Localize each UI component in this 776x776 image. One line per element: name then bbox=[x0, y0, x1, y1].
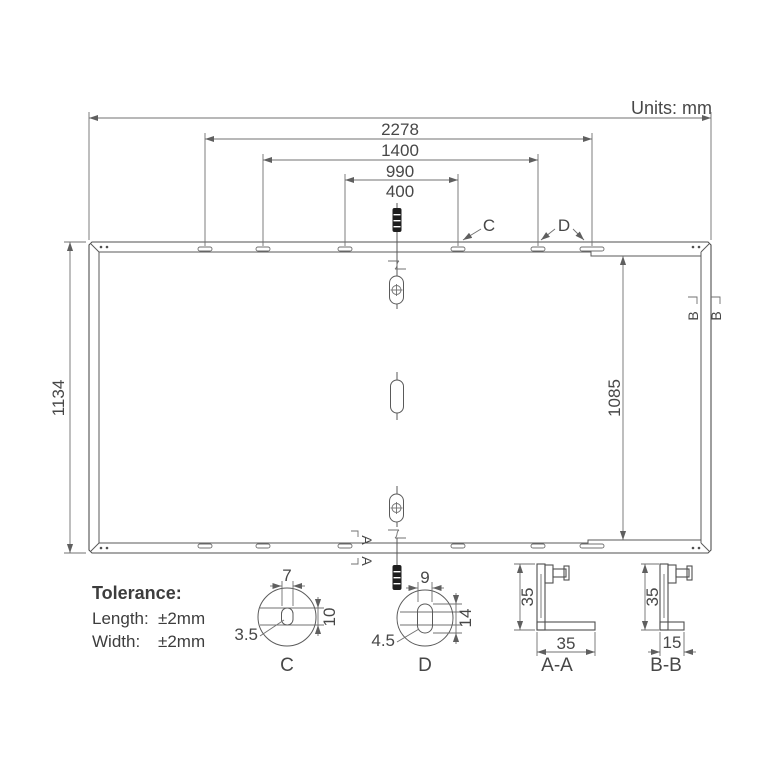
detail-d-circle bbox=[397, 590, 453, 646]
detail-c-title: C bbox=[280, 655, 294, 676]
section-mark-b: B B bbox=[685, 297, 724, 321]
tolerance-width-value: ±2mm bbox=[158, 632, 205, 651]
tolerance-length-label: Length: bbox=[92, 609, 149, 628]
section-view-bb: 35 15 B-B bbox=[641, 564, 696, 676]
tolerance-length-value: ±2mm bbox=[158, 609, 205, 628]
section-b-label-2: B bbox=[708, 311, 724, 320]
bottom-connector bbox=[393, 565, 402, 590]
mounting-slots bbox=[198, 247, 604, 548]
solar-panel-drawing: Units: mm bbox=[0, 0, 776, 776]
junction-centerline bbox=[388, 203, 406, 590]
dimension-1134: 1134 bbox=[49, 242, 86, 553]
dim-400-label: 400 bbox=[386, 182, 414, 201]
callout-c: C bbox=[463, 216, 495, 240]
technical-drawing-page: Units: mm bbox=[0, 0, 776, 776]
frame-profile-bb bbox=[660, 564, 692, 630]
dim-1134-label: 1134 bbox=[49, 380, 68, 417]
detail-d-title: D bbox=[418, 655, 432, 676]
grounding-hole-top bbox=[390, 276, 404, 304]
section-b-label-1: B bbox=[685, 311, 701, 320]
tolerance-note: Tolerance: Length: ±2mm Width: ±2mm bbox=[92, 583, 205, 651]
callout-d: D bbox=[541, 216, 584, 240]
callout-c-label: C bbox=[483, 216, 495, 235]
top-connector bbox=[393, 208, 402, 232]
detail-view-c: 7 10 3.5 C bbox=[234, 566, 339, 676]
frame-profile-aa bbox=[537, 564, 595, 630]
break-symbol-bottom bbox=[388, 530, 406, 538]
section-bb-height-label: 35 bbox=[643, 588, 662, 607]
center-hole bbox=[391, 380, 404, 413]
detail-d-slot bbox=[418, 604, 433, 633]
section-bb-title: B-B bbox=[650, 655, 682, 676]
detail-c-height-label: 10 bbox=[320, 608, 339, 627]
detail-c-circle bbox=[258, 588, 316, 646]
detail-d-radius-label: 4.5 bbox=[371, 631, 395, 650]
section-a-label-2: A bbox=[359, 556, 375, 566]
dim-990-label: 990 bbox=[386, 162, 414, 181]
dim-1085-label: 1085 bbox=[605, 379, 624, 417]
panel-inner-edge-top bbox=[99, 252, 701, 256]
section-mark-a: A A bbox=[351, 531, 375, 566]
corner-chamfer-tl bbox=[91, 244, 99, 252]
detail-d-height-label: 14 bbox=[456, 609, 475, 628]
detail-c-slot bbox=[282, 608, 294, 625]
section-view-aa: 35 35 A-A bbox=[514, 564, 595, 676]
tolerance-width-label: Width: bbox=[92, 632, 140, 651]
dim-1400-label: 1400 bbox=[381, 141, 419, 160]
section-aa-title: A-A bbox=[541, 655, 573, 676]
section-aa-height-label: 35 bbox=[518, 588, 537, 607]
section-aa-width-label: 35 bbox=[557, 634, 576, 653]
detail-d-width-label: 9 bbox=[420, 568, 429, 587]
section-a-label-1: A bbox=[359, 535, 375, 545]
dimension-1085: 1085 bbox=[605, 256, 624, 540]
grounding-hole-bottom bbox=[390, 494, 404, 522]
callout-d-label: D bbox=[558, 216, 570, 235]
corner-chamfer-bl bbox=[91, 543, 99, 551]
section-bb-width-label: 15 bbox=[663, 633, 682, 652]
detail-c-radius-label: 3.5 bbox=[234, 625, 258, 644]
detail-c-width-label: 7 bbox=[282, 566, 291, 585]
tolerance-title: Tolerance: bbox=[92, 583, 182, 603]
detail-view-d: 9 14 4.5 D bbox=[371, 568, 475, 676]
corner-chamfer-tr bbox=[701, 244, 709, 252]
dim-2278-label: 2278 bbox=[381, 120, 419, 139]
panel-inner-edge-bottom bbox=[99, 540, 701, 543]
units-label: Units: mm bbox=[631, 98, 712, 118]
corner-chamfer-br bbox=[701, 543, 709, 551]
